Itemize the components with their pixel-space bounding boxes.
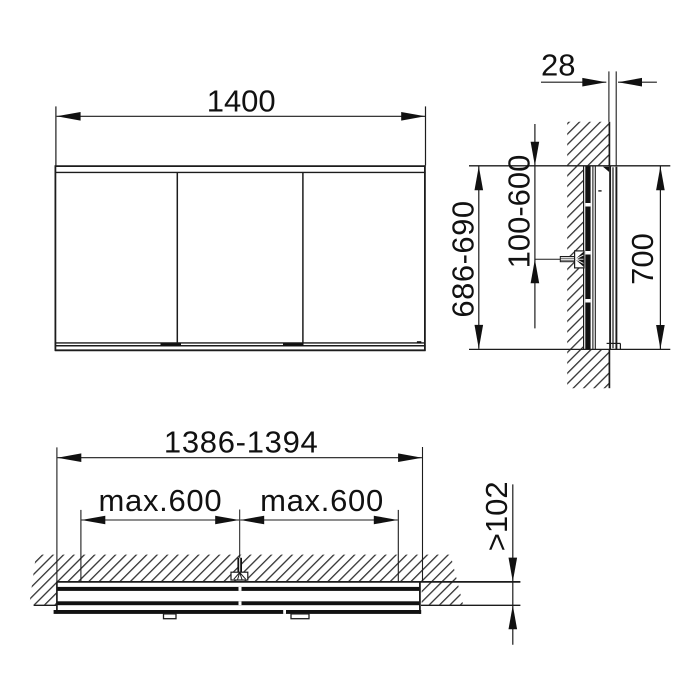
svg-text:1400: 1400 [207,83,276,118]
svg-text:100-600: 100-600 [502,155,537,269]
svg-text:700: 700 [625,233,660,285]
svg-text:max.600: max.600 [260,483,384,518]
svg-text:>102: >102 [479,481,514,551]
svg-text:28: 28 [541,48,575,83]
svg-text:1386-1394: 1386-1394 [164,424,319,459]
svg-text:686-690: 686-690 [445,200,480,317]
svg-text:max.600: max.600 [98,483,222,518]
